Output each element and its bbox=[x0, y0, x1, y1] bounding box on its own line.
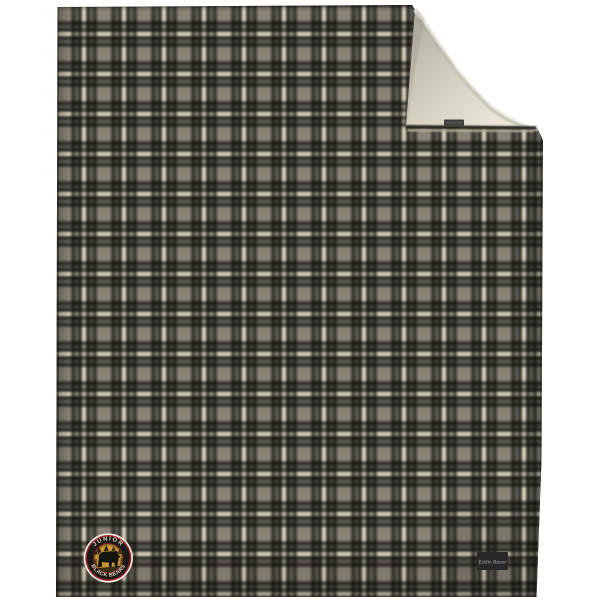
svg-text:Eddie Bauer: Eddie Bauer bbox=[477, 560, 507, 566]
